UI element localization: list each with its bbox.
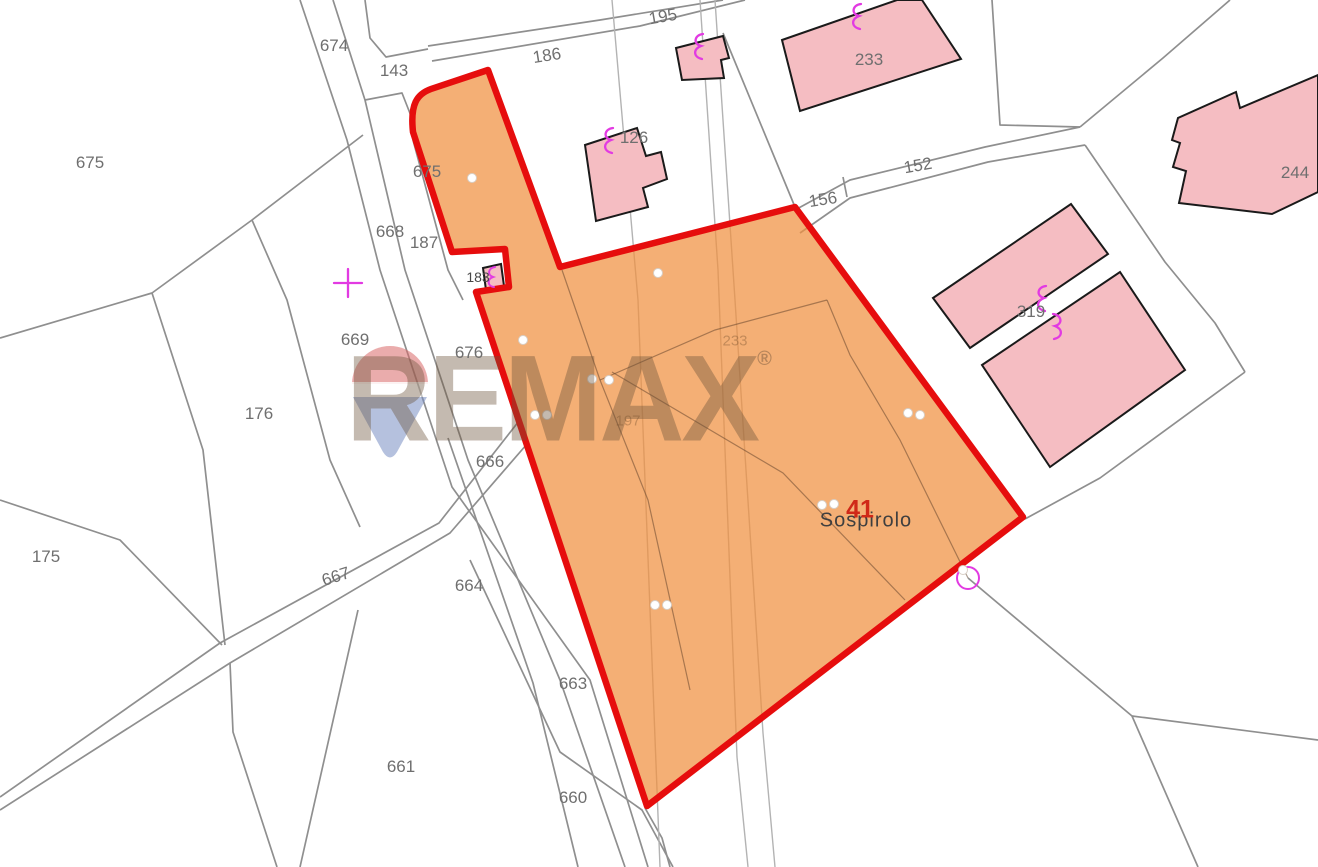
building-244 [1172,75,1318,214]
remax-balloon-icon [352,346,428,458]
building-233 [782,0,961,111]
survey-cross-icon [334,269,362,297]
map-geometry [0,0,1318,867]
cadastral-map[interactable]: REMAX ® 67414318619567567512623315215624… [0,0,1318,867]
highlighted-parcel[interactable] [412,70,1023,806]
building-126 [585,128,667,221]
